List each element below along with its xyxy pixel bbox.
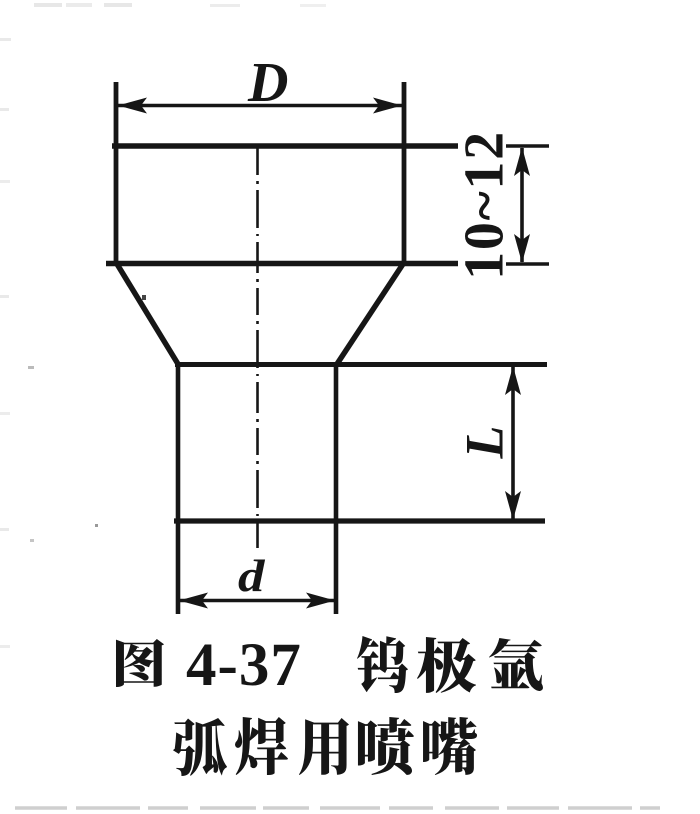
svg-text:D: D [247, 52, 288, 114]
svg-text:d: d [238, 550, 266, 601]
svg-text:4-37: 4-37 [186, 632, 302, 699]
svg-text:L: L [455, 426, 515, 460]
svg-text:10~12: 10~12 [454, 130, 516, 280]
